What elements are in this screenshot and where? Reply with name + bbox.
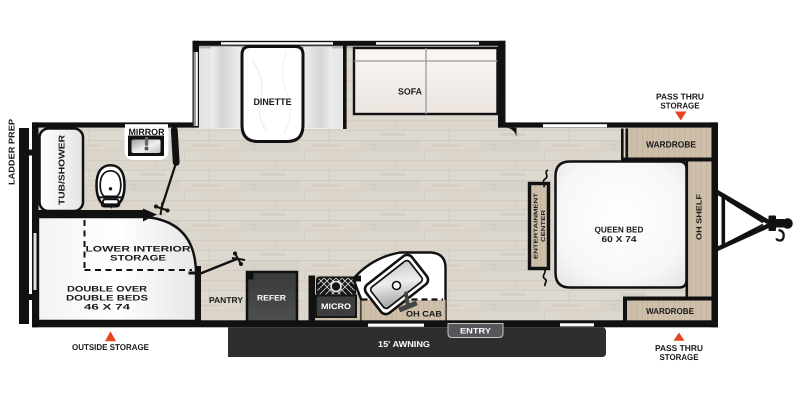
svg-text:ENTRY: ENTRY	[460, 327, 492, 336]
svg-text:QUEEN BED: QUEEN BED	[595, 225, 644, 235]
svg-text:DOUBLE BEDS: DOUBLE BEDS	[66, 294, 149, 303]
svg-text:DOUBLE OVER: DOUBLE OVER	[67, 285, 147, 294]
svg-text:LOWER INTERIOR: LOWER INTERIOR	[86, 245, 191, 254]
svg-text:OUTSIDE STORAGE: OUTSIDE STORAGE	[72, 342, 149, 352]
svg-text:ENTERTAINMENT: ENTERTAINMENT	[534, 192, 540, 259]
svg-text:TUB/SHOWER: TUB/SHOWER	[57, 135, 67, 205]
svg-text:LADDER PREP: LADDER PREP	[7, 119, 17, 185]
svg-text:MICRO: MICRO	[321, 302, 351, 311]
svg-text:WARDROBE: WARDROBE	[646, 140, 696, 150]
svg-text:46 X 74: 46 X 74	[84, 303, 131, 312]
svg-text:STORAGE: STORAGE	[660, 352, 699, 362]
svg-text:MIRROR: MIRROR	[129, 127, 165, 137]
svg-text:15' AWNING: 15' AWNING	[378, 339, 430, 349]
svg-text:OH SHELF: OH SHELF	[695, 193, 704, 240]
svg-text:PANTRY: PANTRY	[209, 295, 243, 305]
svg-text:REFER: REFER	[257, 294, 286, 303]
svg-text:60 X 74: 60 X 74	[602, 234, 637, 244]
svg-text:WARDROBE: WARDROBE	[646, 306, 694, 316]
svg-text:SOFA: SOFA	[398, 87, 422, 97]
svg-text:DINETTE: DINETTE	[254, 97, 292, 108]
svg-text:OH CAB: OH CAB	[406, 310, 442, 319]
svg-text:CENTER: CENTER	[541, 210, 547, 242]
svg-text:STORAGE: STORAGE	[661, 101, 700, 111]
svg-text:STORAGE: STORAGE	[110, 254, 167, 263]
